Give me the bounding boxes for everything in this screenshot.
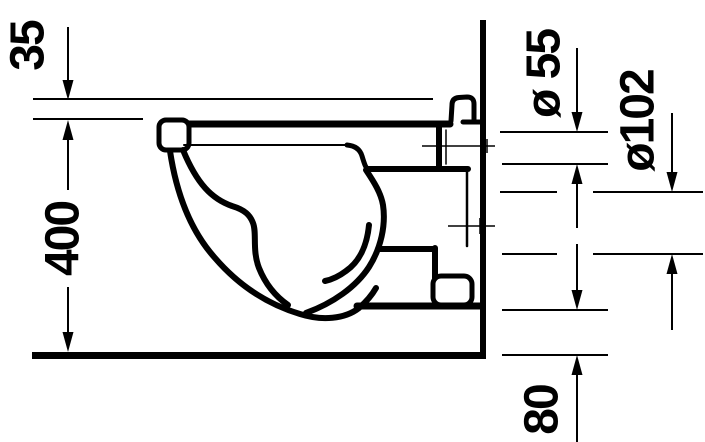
dim-35-label: 35: [2, 20, 55, 71]
outlet-stub: [433, 276, 472, 305]
dim-80-arrow-up: [572, 355, 583, 375]
toilet-body: [159, 97, 481, 318]
dim-102-arrow-down: [667, 172, 678, 192]
dim-400-arrow-up: [63, 120, 74, 140]
dim-102-arrow-up: [667, 254, 678, 274]
dimension-400: 400: [37, 120, 90, 352]
floor-line: [32, 352, 486, 359]
dim-400-arrow-down: [63, 332, 74, 352]
dimension-80: 80: [516, 244, 583, 442]
dim-80-arrow-down: [572, 290, 583, 310]
dimension-dia102: ø102: [612, 70, 678, 330]
dim-55-arrow-up: [572, 164, 583, 184]
dim-102-label: ø102: [612, 70, 665, 172]
dim-55-label: ø 55: [518, 29, 571, 118]
dim-55-arrow-down: [572, 112, 583, 132]
dim-35-arrow-down: [63, 80, 74, 100]
rim-rear-corner: [347, 145, 368, 169]
technical-drawing-page: 35 400 ø 55 ø102: [0, 0, 705, 442]
dim-80-label: 80: [516, 385, 569, 435]
inlet-spud-outline: [451, 97, 474, 121]
dimension-dia55: ø 55: [518, 29, 583, 228]
dimension-35: 35: [2, 20, 74, 100]
dim-400-label: 400: [37, 202, 90, 276]
toilet-elevation-drawing: 35 400 ø 55 ø102: [0, 0, 705, 442]
